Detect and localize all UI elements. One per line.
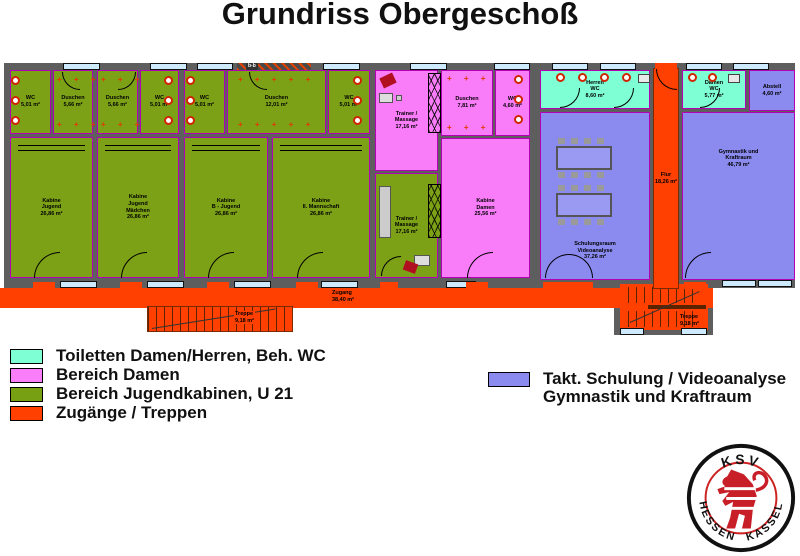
bench [280, 145, 362, 151]
window [147, 281, 184, 288]
locker-strip [428, 184, 441, 238]
window [686, 63, 722, 70]
room-zugang-label: Zugang 38,40 m² [332, 290, 354, 303]
legend-swatch-orange [10, 406, 43, 421]
shower-heads-icon [447, 124, 490, 132]
door-gap [684, 282, 706, 289]
room-wc-4: WC 5,01 m² [328, 70, 370, 134]
chairs-row [558, 138, 610, 144]
toilet-icon [186, 96, 195, 105]
toilet-icon [514, 115, 523, 124]
stair-landing-divider [648, 305, 706, 309]
shower-heads-icon [57, 121, 100, 129]
toilet-icon [514, 95, 523, 104]
toilet-icon [164, 116, 173, 125]
door-gap [207, 282, 229, 289]
sink-icon [728, 74, 740, 83]
desk [379, 93, 393, 103]
legend-label: Zugänge / Treppen [56, 403, 207, 423]
window [620, 328, 644, 335]
window [494, 63, 530, 70]
conference-table-2 [556, 193, 612, 217]
toilet-icon [514, 75, 523, 84]
window [323, 63, 360, 70]
bench [192, 145, 260, 151]
conference-table-1 [556, 146, 612, 170]
section-marker: b-b [246, 63, 258, 70]
legend-swatch-teal [10, 349, 43, 364]
window [733, 63, 769, 70]
window [722, 280, 756, 287]
toilet-icon [186, 76, 195, 85]
toilet-icon [688, 73, 697, 82]
toilet-icon [578, 73, 587, 82]
toilet-icon [353, 76, 362, 85]
legend-item-zugaenge: Zugänge / Treppen [10, 403, 207, 423]
legend-label: Toiletten Damen/Herren, Beh. WC [56, 346, 326, 366]
window [321, 281, 358, 288]
window [410, 63, 447, 70]
legend-item-toiletten: Toiletten Damen/Herren, Beh. WC [10, 346, 326, 366]
ksv-logo: KSV HESSEN KASSEL [682, 440, 800, 556]
room-abstell: Abstell 4,60 m² [749, 70, 795, 111]
room-wc-2: WC 5,01 m² [140, 70, 179, 134]
legend-swatch-purple [488, 372, 530, 387]
door-gap [380, 282, 398, 289]
toilet-icon [353, 116, 362, 125]
shower-heads-icon [447, 75, 490, 83]
staircase-right-label: Treppe 9,18 m² [680, 314, 699, 327]
legend-swatch-pink [10, 368, 43, 383]
floor-plan: Zugang 38,40 m² Treppe 9,18 m² Treppe 9,… [0, 0, 800, 340]
legend-label: Bereich Damen [56, 365, 180, 385]
toilet-icon [164, 76, 173, 85]
locker-strip [428, 73, 441, 133]
chair [396, 95, 402, 101]
window [681, 328, 707, 335]
legend-label: Bereich Jugendkabinen, U 21 [56, 384, 293, 404]
toilet-icon [600, 73, 609, 82]
cabinet [379, 186, 391, 238]
toilet-icon [186, 116, 195, 125]
chairs-row [558, 172, 610, 178]
window [63, 63, 100, 70]
bench [105, 145, 171, 151]
room-wc-damen-bereich: WC 4,60 m² [495, 70, 530, 136]
shower-heads-icon [238, 121, 315, 129]
room-zugang-corridor [0, 288, 713, 308]
page: Grundriss Obergeschoß Zugang 38,40 m² Tr… [0, 0, 800, 556]
window [60, 281, 97, 288]
bench [18, 145, 85, 151]
staircase-left-label: Treppe 9,18 m² [234, 311, 255, 324]
chairs-row [558, 185, 610, 191]
legend-item-jugend: Bereich Jugendkabinen, U 21 [10, 384, 293, 404]
window [758, 280, 792, 287]
door-gap [120, 282, 142, 289]
chairs-row [558, 219, 610, 225]
legend-label: Takt. Schulung / Videoanalyse [543, 369, 786, 389]
window [197, 63, 233, 70]
room-flur: Flur 18,26 m² [653, 68, 679, 289]
toilet-icon [11, 96, 20, 105]
legend-swatch-olive [10, 387, 43, 402]
door-gap [296, 282, 318, 289]
door-gap [543, 282, 593, 289]
toilet-icon [164, 96, 173, 105]
sink-icon [638, 74, 650, 83]
toilet-icon [708, 73, 717, 82]
window [552, 63, 588, 70]
window [150, 63, 187, 70]
toilet-icon [556, 73, 565, 82]
shower-heads-icon [101, 121, 144, 129]
toilet-icon [353, 96, 362, 105]
legend-item-schulung: Takt. Schulung / Videoanalyse [488, 369, 786, 389]
legend-item-damen: Bereich Damen [10, 365, 180, 385]
door-gap [466, 282, 488, 289]
toilet-icon [11, 116, 20, 125]
window [234, 281, 271, 288]
door-gap [33, 282, 55, 289]
toilet-icon [622, 73, 631, 82]
window [600, 63, 636, 70]
legend-label-line2: Gymnastik und Kraftraum [543, 387, 752, 407]
toilet-icon [11, 76, 20, 85]
